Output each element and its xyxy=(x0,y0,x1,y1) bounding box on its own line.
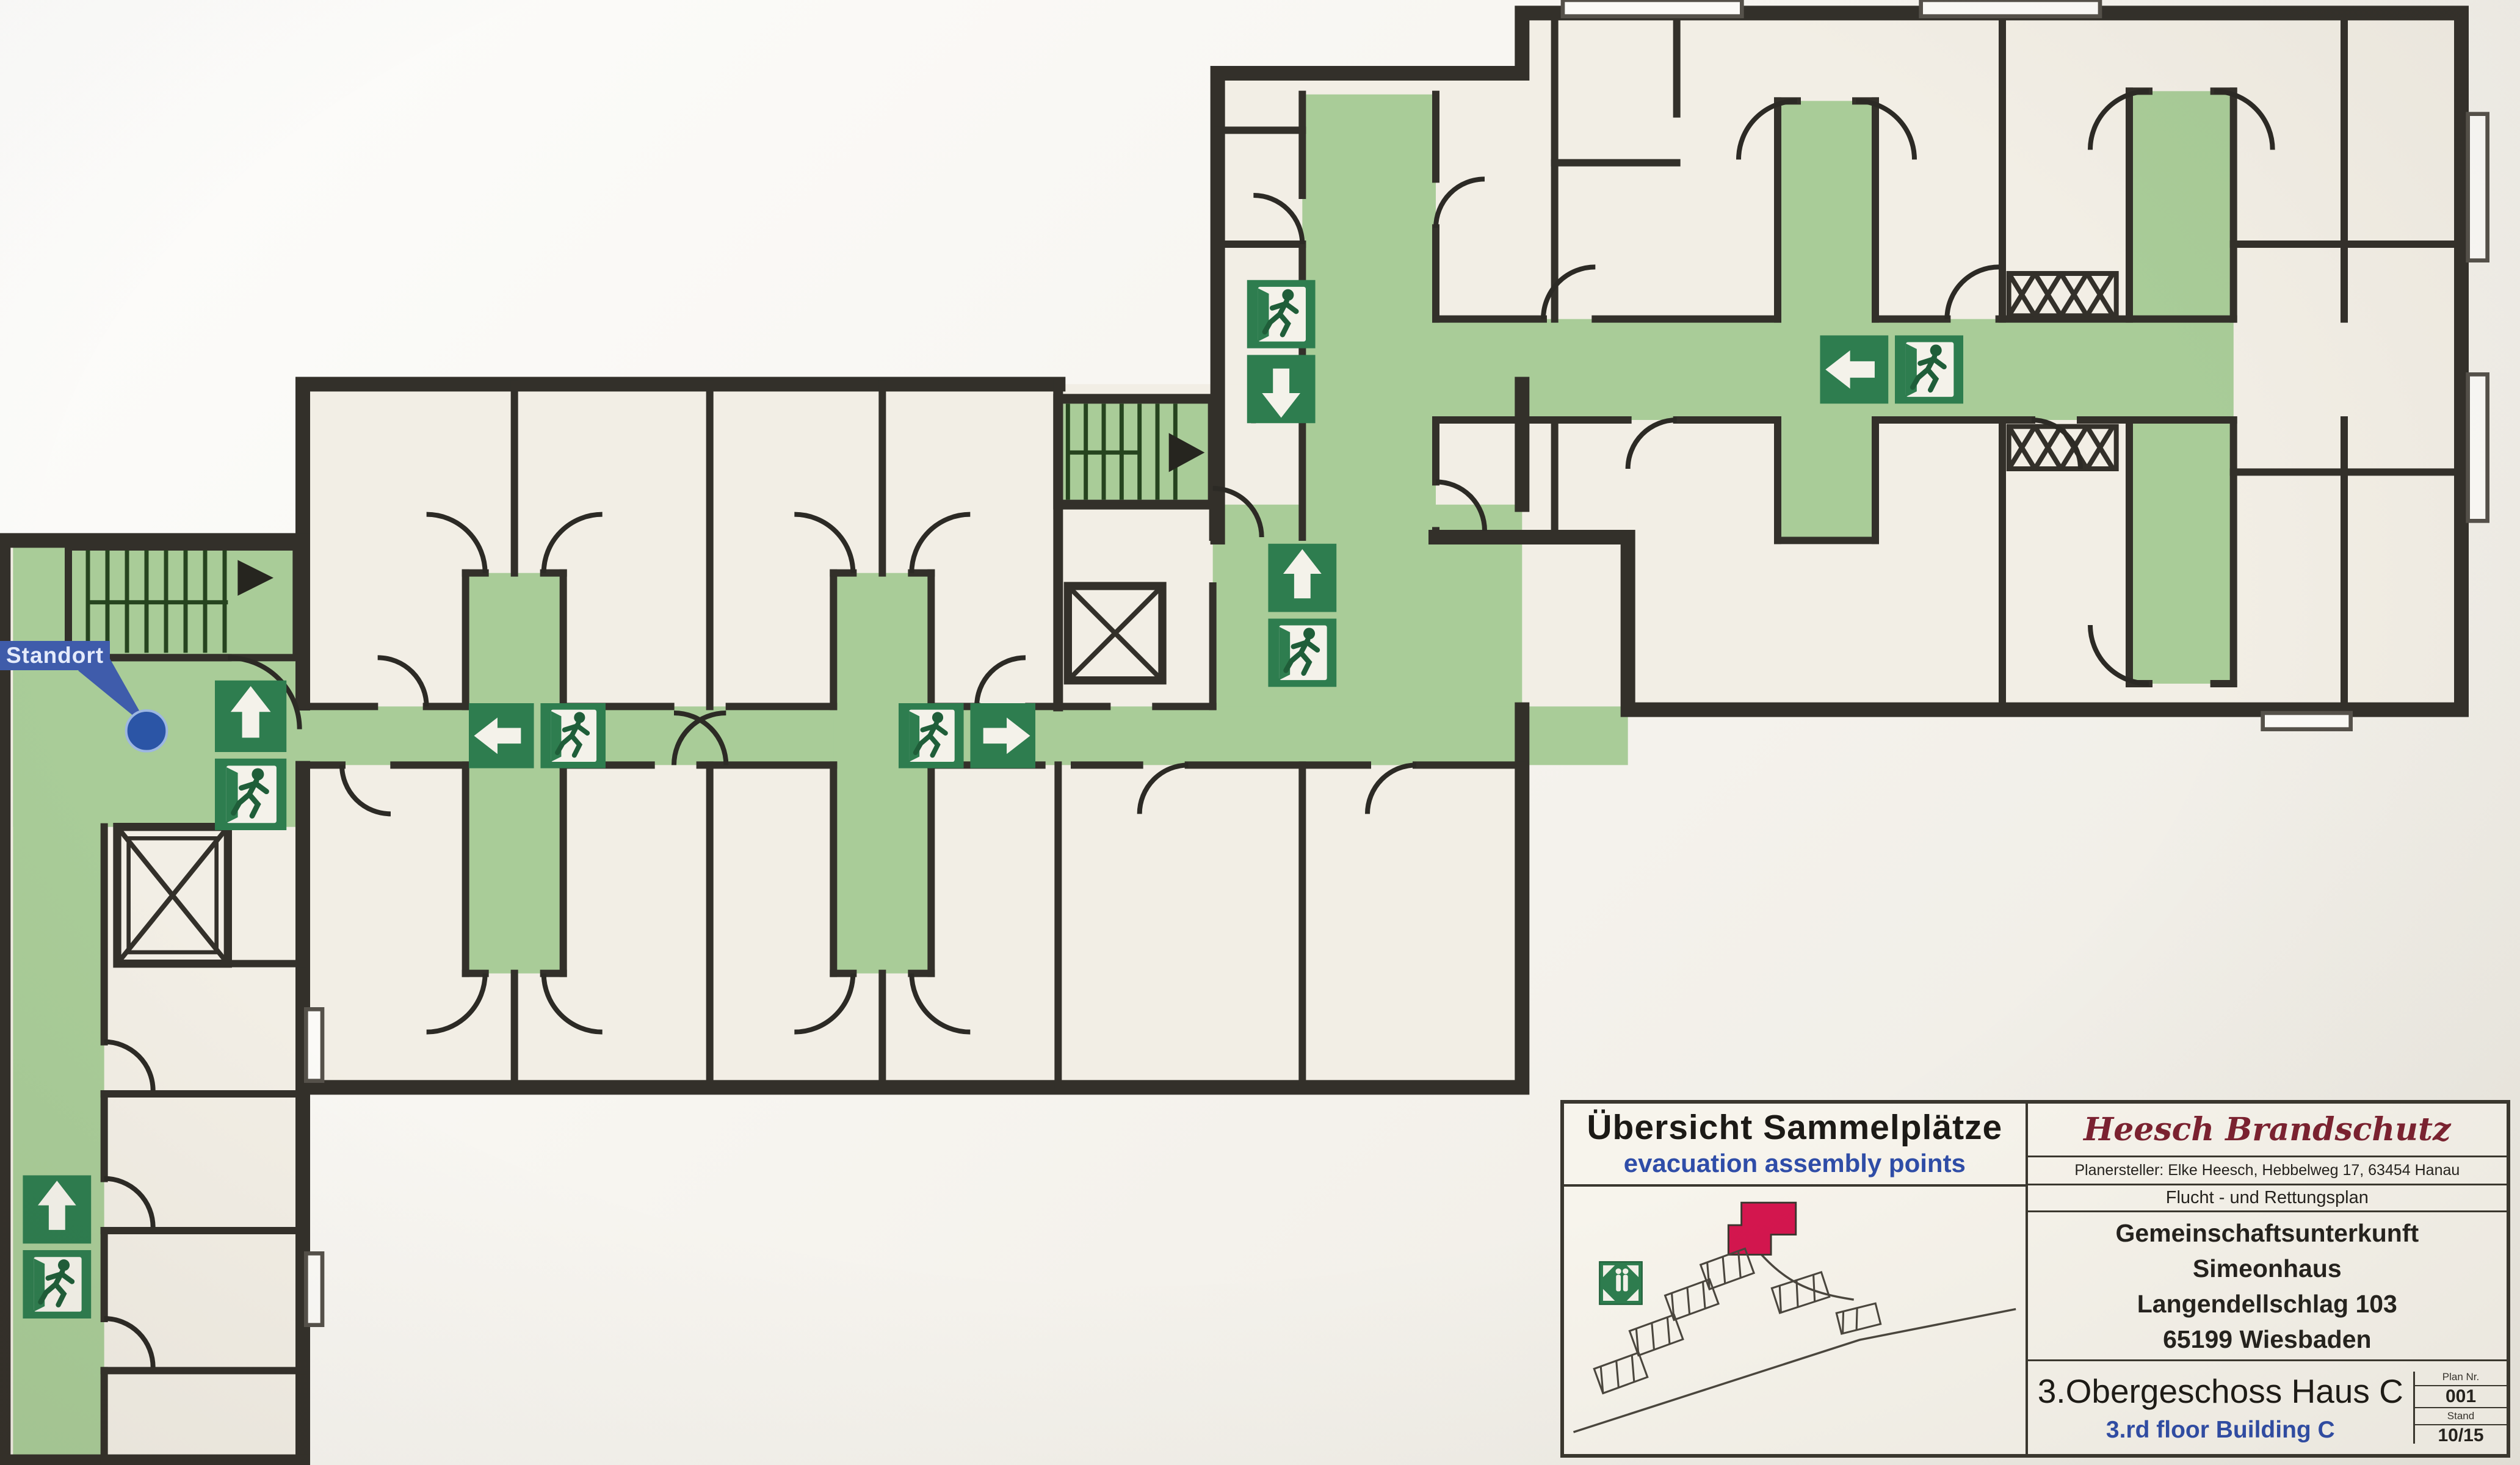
floor-label-en: 3.rd floor Building C xyxy=(2106,1417,2335,1444)
legend-left-panel: Übersicht Sammelplätze evacuation assemb… xyxy=(1564,1104,2028,1454)
legend-floor-cell: 3.Obergeschoss Haus C 3.rd floor Buildin… xyxy=(2028,1372,2415,1444)
corridor-right-wing-branch-east xyxy=(2129,91,2234,684)
legend-title-block: Übersicht Sammelplätze evacuation assemb… xyxy=(1564,1104,2026,1187)
corridor-right-wing-branch-mid xyxy=(1778,101,1875,540)
exit-running-man-icon xyxy=(1268,618,1336,687)
assembly-point-icon xyxy=(1599,1262,1642,1304)
floor-label-de: 3.Obergeschoss Haus C xyxy=(2038,1372,2403,1411)
elevator-2 xyxy=(1068,586,1162,681)
assembly-site-map xyxy=(1564,1187,2026,1454)
arrow-right-icon xyxy=(970,703,1035,769)
legend-right-panel: Heesch Brandschutz Planersteller: Elke H… xyxy=(2028,1104,2507,1454)
exit-running-man-icon xyxy=(1895,335,1963,403)
legend-planner: Planersteller: Elke Heesch, Hebbelweg 17… xyxy=(2028,1157,2507,1185)
legend-title-en: evacuation assembly points xyxy=(1564,1149,2026,1178)
legend-meta-column: Plan Nr. 001 Stand 10/15 xyxy=(2415,1369,2507,1446)
arrow-up-icon xyxy=(23,1175,91,1243)
exit-running-man-icon xyxy=(540,703,606,769)
legend-info-box: Übersicht Sammelplätze evacuation assemb… xyxy=(1560,1100,2510,1458)
revision-value: 10/15 xyxy=(2415,1425,2507,1446)
arrow-left-icon xyxy=(469,703,534,769)
standort-label: Standort xyxy=(0,641,110,670)
revision-label: Stand xyxy=(2415,1408,2507,1425)
legend-facility-address: Gemeinschaftsunterkunft Simeonhaus Lange… xyxy=(2028,1212,2507,1361)
plan-number-value: 001 xyxy=(2415,1386,2507,1408)
exit-running-man-icon xyxy=(215,759,286,830)
location-dot-icon xyxy=(126,711,167,751)
legend-plan-type: Flucht - und Rettungsplan xyxy=(2028,1185,2507,1212)
legend-floor-row: 3.Obergeschoss Haus C 3.rd floor Buildin… xyxy=(2028,1361,2507,1454)
legend-company: Heesch Brandschutz xyxy=(2028,1104,2507,1157)
standort-label-text: Standort xyxy=(6,643,104,668)
arrow-down-icon xyxy=(1247,355,1316,423)
facility-line-4: 65199 Wiesbaden xyxy=(2163,1322,2371,1357)
facility-line-3: Langendellschlag 103 xyxy=(2137,1286,2397,1322)
site-building-highlighted xyxy=(1728,1203,1795,1254)
facility-line-2: Simeonhaus xyxy=(2193,1251,2342,1286)
plan-number-label: Plan Nr. xyxy=(2415,1369,2507,1386)
corridor-middle-branch-east xyxy=(833,573,931,974)
elevator-1 xyxy=(117,827,228,964)
exit-running-man-icon xyxy=(899,703,964,769)
evacuation-plan-photo: { "standort": { "label": "Standort" }, "… xyxy=(0,0,2520,1465)
corridor-left-wing-vertical xyxy=(13,657,104,1461)
exit-running-man-icon xyxy=(1247,280,1316,349)
corridor-middle-branch-west xyxy=(466,573,563,974)
exit-running-man-icon xyxy=(23,1250,91,1318)
site-map-drawing xyxy=(1564,1187,2026,1454)
arrow-up-icon xyxy=(215,681,286,752)
arrow-up-icon xyxy=(1268,544,1336,612)
facility-line-1: Gemeinschaftsunterkunft xyxy=(2115,1215,2419,1251)
legend-title-de: Übersicht Sammelplätze xyxy=(1564,1107,2026,1148)
arrow-left-icon xyxy=(1820,335,1888,403)
